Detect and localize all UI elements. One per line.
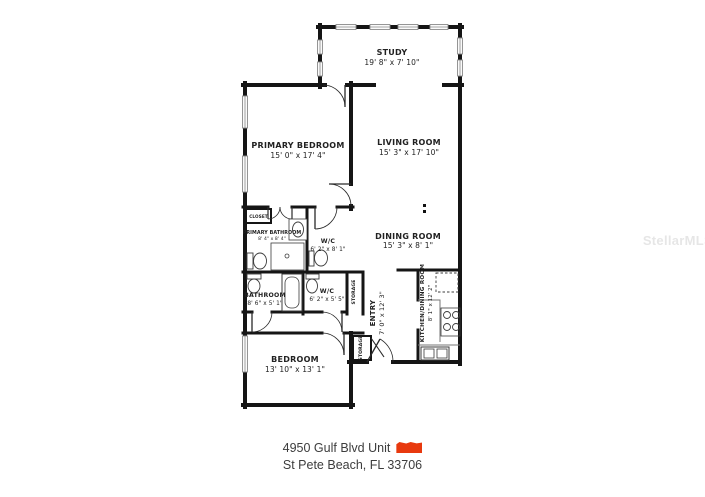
refrigerator bbox=[436, 273, 458, 292]
column-marker bbox=[423, 204, 426, 207]
primary-bathroom-dims: 8' 4" x 8' 4" bbox=[258, 236, 286, 242]
wc-lower-toilet bbox=[307, 279, 318, 293]
bedroom-label: BEDROOM bbox=[271, 355, 319, 364]
storage-hall-label: STORAGE bbox=[351, 279, 357, 304]
bathroom-dims: 8' 6" x 5' 1" bbox=[247, 301, 283, 307]
primary-bedroom-dims: 15' 0" x 17' 4" bbox=[270, 151, 325, 160]
dining-room-label: DINING ROOM bbox=[375, 232, 441, 241]
bathtub-basin bbox=[285, 277, 299, 308]
floorplan-page: STUDY 19' 8" x 7' 10" PRIMARY BEDROOM 15… bbox=[0, 0, 705, 497]
primary-bedroom-label: PRIMARY BEDROOM bbox=[251, 141, 344, 150]
address-block: 4950 Gulf Blvd Unit St Pete Beach, FL 33… bbox=[0, 440, 705, 474]
bathroom-label: BATHROOM bbox=[244, 292, 286, 299]
wc-lower-toilet-tank bbox=[306, 274, 319, 279]
kitchen-label: KITCHEN/DINING ROOM bbox=[420, 264, 426, 343]
dining-room-dims: 15' 3" x 8' 1" bbox=[383, 241, 433, 250]
wc-lower-dims: 6' 2" x 5' 5" bbox=[309, 297, 345, 303]
primary-bathroom-label: PRIMARY BATHROOM bbox=[243, 230, 302, 236]
floorplan-drawing: STUDY 19' 8" x 7' 10" PRIMARY BEDROOM 15… bbox=[0, 0, 705, 497]
stove bbox=[441, 308, 460, 336]
bathroom-toilet bbox=[248, 279, 260, 293]
wc-upper-toilet-tank bbox=[309, 251, 314, 266]
primary-bath-toilet bbox=[254, 253, 267, 269]
storage-entry-label: STORAGE bbox=[358, 335, 364, 360]
kitchen-dims: 8' 1" x 12' 2" bbox=[428, 285, 434, 322]
wc-lower-label: W/C bbox=[320, 288, 335, 295]
unit-number-redaction-icon bbox=[396, 442, 422, 453]
address-line1: 4950 Gulf Blvd Unit bbox=[0, 440, 705, 457]
living-room-label: LIVING ROOM bbox=[377, 138, 441, 147]
entry-label: ENTRY bbox=[369, 299, 377, 326]
bedroom-dims: 13' 10" x 13' 1" bbox=[265, 365, 325, 374]
shower-drain bbox=[285, 254, 289, 258]
study-label: STUDY bbox=[377, 48, 408, 57]
bathroom-toilet-tank bbox=[247, 274, 261, 279]
primary-bath-toilet-tank bbox=[247, 253, 253, 269]
study-dims: 19' 8" x 7' 10" bbox=[364, 58, 419, 67]
wc-upper-label: W/C bbox=[321, 238, 336, 245]
wc-upper-dims: 6' 2" x 8' 1" bbox=[310, 247, 346, 253]
living-room-dims: 15' 3" x 17' 10" bbox=[379, 148, 439, 157]
stove-burners bbox=[444, 312, 460, 331]
shower bbox=[271, 243, 304, 270]
closet-label: CLOSET bbox=[249, 214, 268, 219]
address-line1-text: 4950 Gulf Blvd Unit bbox=[283, 441, 391, 455]
address-line2: St Pete Beach, FL 33706 bbox=[0, 457, 705, 474]
column-marker bbox=[423, 210, 426, 213]
entry-dims: 7' 0" x 12' 3" bbox=[378, 291, 386, 335]
mls-watermark: StellarMLS bbox=[643, 233, 705, 248]
